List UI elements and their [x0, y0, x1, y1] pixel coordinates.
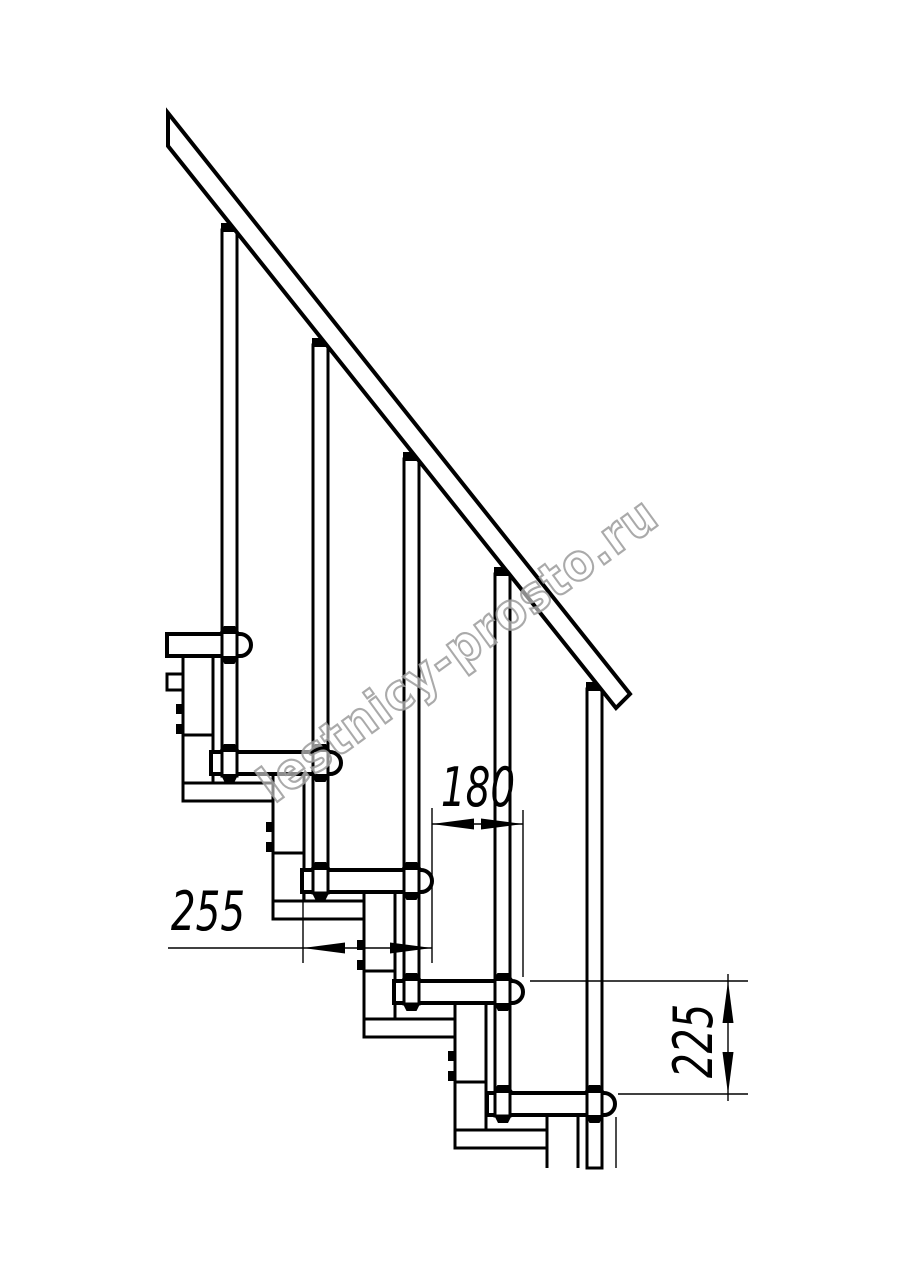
- dim-255-label: 255: [171, 881, 245, 944]
- dim-180-label: 180: [441, 757, 515, 820]
- bolt-tab: [448, 1051, 456, 1061]
- baluster-1: [222, 230, 237, 776]
- bolt-tab: [266, 822, 274, 832]
- baluster-5: [587, 689, 602, 1168]
- bolt-tab: [448, 1071, 456, 1081]
- arrow-left: [432, 819, 474, 830]
- drawing-canvas: 180 255 225 lestnicy-prosto.ru: [0, 0, 914, 1280]
- nut: [403, 1003, 421, 1011]
- nut: [221, 774, 239, 782]
- baluster-3: [404, 459, 419, 1004]
- bolt-tab: [176, 724, 184, 734]
- bolt-tab: [357, 960, 365, 970]
- support-plate-stub-0: [167, 674, 184, 690]
- support-module-5: [547, 1115, 578, 1168]
- nut: [494, 1115, 512, 1123]
- baluster-2: [313, 345, 328, 893]
- bolt-tab: [176, 704, 184, 714]
- dim-225-label: 225: [663, 1004, 726, 1078]
- bolt-tab: [266, 842, 274, 852]
- dimension-225: 225: [530, 974, 748, 1168]
- nut: [312, 892, 330, 900]
- arrow-left: [303, 943, 345, 954]
